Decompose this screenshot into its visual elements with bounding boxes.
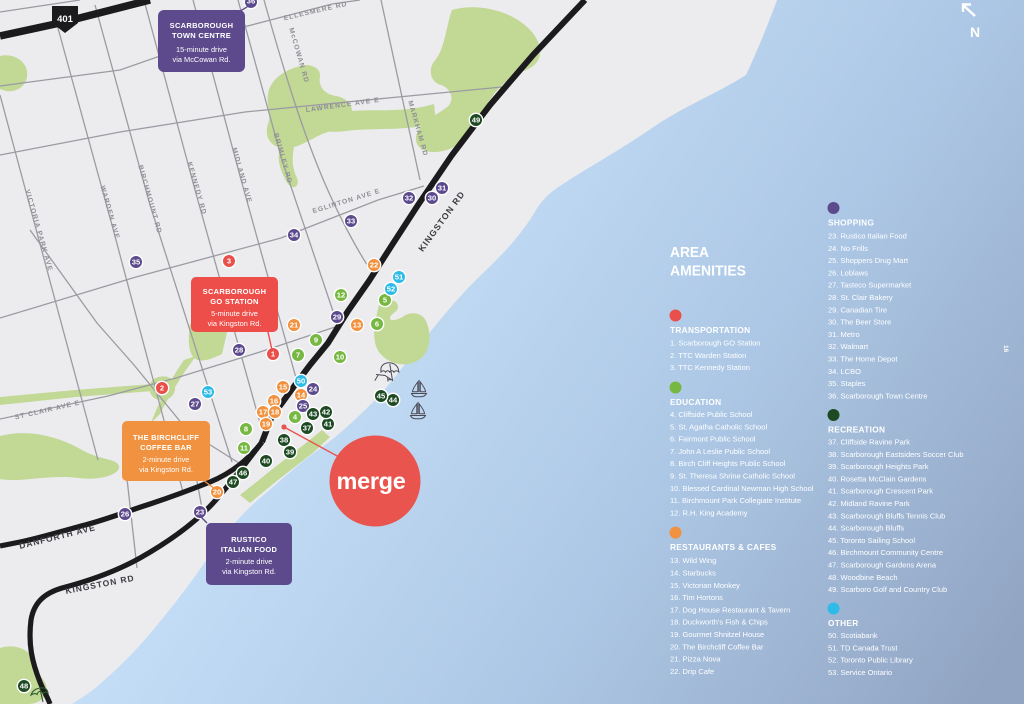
svg-text:9. St. Theresa Shrine Catholic: 9. St. Theresa Shrine Catholic School [670, 472, 795, 481]
svg-text:RUSTICO: RUSTICO [231, 535, 267, 544]
svg-text:AREA: AREA [670, 245, 709, 261]
svg-text:29: 29 [333, 313, 341, 322]
svg-text:3: 3 [227, 257, 231, 266]
svg-text:49. Scarboro Golf and Country: 49. Scarboro Golf and Country Club [828, 585, 947, 594]
svg-text:2-minute drive: 2-minute drive [226, 557, 273, 566]
svg-text:2-minute drive: 2-minute drive [143, 455, 190, 464]
svg-text:41. Scarborough Crescent Park: 41. Scarborough Crescent Park [828, 487, 933, 496]
svg-text:THE BIRCHCLIFF: THE BIRCHCLIFF [133, 433, 199, 442]
svg-text:25. Shoppers Drug Mart: 25. Shoppers Drug Mart [828, 256, 909, 265]
svg-text:11: 11 [240, 444, 249, 453]
svg-text:51: 51 [395, 273, 404, 282]
svg-text:47: 47 [229, 478, 237, 487]
svg-text:51. TD Canada Trust: 51. TD Canada Trust [828, 643, 898, 652]
svg-text:35: 35 [132, 258, 141, 267]
svg-text:45. Toronto Sailing School: 45. Toronto Sailing School [828, 536, 915, 545]
svg-text:34. LCBO: 34. LCBO [828, 367, 861, 376]
svg-text:EDUCATION: EDUCATION [670, 397, 721, 407]
svg-text:16. Tim Hortons: 16. Tim Hortons [670, 593, 723, 602]
svg-text:30. The Beer Store: 30. The Beer Store [828, 318, 891, 327]
svg-text:33. The Home Depot: 33. The Home Depot [828, 355, 898, 364]
svg-text:8. Birch Cliff Heights Public: 8. Birch Cliff Heights Public School [670, 459, 786, 468]
svg-text:9: 9 [314, 336, 318, 345]
svg-text:41: 41 [324, 420, 333, 429]
svg-text:28: 28 [235, 346, 243, 355]
svg-text:23. Rustico Italian Food: 23. Rustico Italian Food [828, 232, 907, 241]
svg-text:31: 31 [438, 184, 447, 193]
svg-text:via Kingston Rd.: via Kingston Rd. [139, 465, 193, 474]
svg-text:23: 23 [196, 508, 204, 517]
svg-text:GO STATION: GO STATION [210, 297, 259, 306]
svg-text:via McCowan Rd.: via McCowan Rd. [173, 55, 231, 64]
svg-text:20. The Birchcliff Coffee Bar: 20. The Birchcliff Coffee Bar [670, 642, 764, 651]
svg-text:35. Staples: 35. Staples [828, 379, 866, 388]
svg-text:7: 7 [296, 351, 300, 360]
svg-text:7. John A Leslie Public School: 7. John A Leslie Public School [670, 447, 770, 456]
svg-text:52: 52 [387, 285, 395, 294]
svg-text:46: 46 [239, 469, 247, 478]
svg-text:32: 32 [405, 194, 413, 203]
svg-text:17. Dog House Restaurant & Tav: 17. Dog House Restaurant & Tavern [670, 605, 790, 614]
svg-text:15: 15 [279, 383, 288, 392]
svg-text:TRANSPORTATION: TRANSPORTATION [670, 325, 750, 335]
svg-text:49: 49 [472, 116, 480, 125]
svg-text:17: 17 [259, 408, 267, 417]
svg-text:N: N [970, 24, 980, 40]
svg-text:26: 26 [121, 510, 129, 519]
svg-text:14: 14 [297, 391, 306, 400]
svg-text:47. Scarborough Gardens Arena: 47. Scarborough Gardens Arena [828, 561, 937, 570]
svg-text:36: 36 [247, 0, 255, 6]
svg-text:16: 16 [270, 397, 278, 406]
svg-text:29. Canadian Tire: 29. Canadian Tire [828, 305, 887, 314]
svg-text:19: 19 [262, 420, 270, 429]
svg-text:48. Woodbine Beach: 48. Woodbine Beach [828, 573, 898, 582]
svg-text:50. Scotiabank: 50. Scotiabank [828, 631, 878, 640]
svg-text:21. Pizza Nova: 21. Pizza Nova [670, 655, 721, 664]
svg-text:39. Scarborough Heights Park: 39. Scarborough Heights Park [828, 462, 929, 471]
svg-text:TOWN CENTRE: TOWN CENTRE [172, 31, 231, 40]
svg-text:via Kingston Rd.: via Kingston Rd. [208, 319, 262, 328]
svg-text:16: 16 [1002, 345, 1009, 353]
svg-text:COFFEE BAR: COFFEE BAR [140, 443, 192, 452]
svg-text:44: 44 [389, 396, 398, 405]
svg-text:50: 50 [297, 377, 305, 386]
svg-text:14. Starbucks: 14. Starbucks [670, 569, 716, 578]
svg-text:RECREATION: RECREATION [828, 425, 885, 435]
svg-text:33: 33 [347, 217, 355, 226]
svg-text:3. TTC Kennedy Station: 3. TTC Kennedy Station [670, 363, 750, 372]
svg-text:6. Fairmont Public School: 6. Fairmont Public School [670, 435, 756, 444]
svg-text:28. St. Clair Bakery: 28. St. Clair Bakery [828, 293, 893, 302]
svg-text:19. Gourmet Shnitzel House: 19. Gourmet Shnitzel House [670, 630, 764, 639]
svg-text:24: 24 [309, 385, 318, 394]
svg-text:5-minute drive: 5-minute drive [211, 309, 258, 318]
svg-text:merge: merge [336, 468, 405, 494]
svg-text:27: 27 [191, 400, 199, 409]
svg-text:27. Tasteco Supermarket: 27. Tasteco Supermarket [828, 281, 912, 290]
svg-text:52. Toronto Public Library: 52. Toronto Public Library [828, 656, 913, 665]
svg-text:RESTAURANTS & CAFES: RESTAURANTS & CAFES [670, 542, 777, 552]
svg-text:24. No Frills: 24. No Frills [828, 244, 868, 253]
svg-text:8: 8 [244, 425, 248, 434]
svg-text:22. Drip Cafe: 22. Drip Cafe [670, 667, 714, 676]
svg-text:42. Midland Ravine Park: 42. Midland Ravine Park [828, 499, 910, 508]
svg-text:12. R.H. King Academy: 12. R.H. King Academy [670, 508, 748, 517]
svg-text:42: 42 [322, 408, 330, 417]
svg-text:SCARBOROUGH: SCARBOROUGH [203, 287, 267, 296]
svg-text:48: 48 [20, 682, 28, 691]
svg-text:2. TTC Warden Station: 2. TTC Warden Station [670, 351, 746, 360]
svg-text:43. Scarborough Bluffs Tennis: 43. Scarborough Bluffs Tennis Club [828, 511, 945, 520]
svg-text:15-minute drive: 15-minute drive [176, 45, 227, 54]
svg-text:5. St. Agatha Catholic School: 5. St. Agatha Catholic School [670, 422, 767, 431]
svg-text:2: 2 [160, 384, 164, 393]
svg-text:1. Scarborough GO Station: 1. Scarborough GO Station [670, 339, 760, 348]
svg-text:38. Scarborough Eastsiders Soc: 38. Scarborough Eastsiders Soccer Club [828, 450, 964, 459]
svg-text:30: 30 [428, 194, 436, 203]
svg-text:37. Cliffside Ravine Park: 37. Cliffside Ravine Park [828, 438, 910, 447]
svg-text:ITALIAN FOOD: ITALIAN FOOD [221, 545, 278, 554]
svg-text:46. Birchmount Community Centr: 46. Birchmount Community Centre [828, 548, 943, 557]
svg-text:53. Service Ontario: 53. Service Ontario [828, 668, 892, 677]
svg-text:12: 12 [337, 291, 345, 300]
svg-text:11. Birchmount Park Collegiate: 11. Birchmount Park Collegiate Institute [670, 496, 801, 505]
svg-text:45: 45 [377, 392, 386, 401]
svg-text:31. Metro: 31. Metro [828, 330, 860, 339]
svg-text:18. Duckworth's Fish & Chips: 18. Duckworth's Fish & Chips [670, 618, 768, 627]
svg-text:39: 39 [286, 448, 294, 457]
svg-text:40. Rosetta McClain Gardens: 40. Rosetta McClain Gardens [828, 474, 927, 483]
svg-text:25: 25 [299, 402, 308, 411]
svg-text:13: 13 [353, 321, 361, 330]
svg-text:SHOPPING: SHOPPING [828, 218, 874, 228]
svg-text:15. Victorian Monkey: 15. Victorian Monkey [670, 581, 740, 590]
svg-text:43: 43 [309, 410, 317, 419]
svg-text:36. Scarborough Town Centre: 36. Scarborough Town Centre [828, 391, 928, 400]
svg-text:OTHER: OTHER [828, 618, 859, 628]
svg-text:AMENITIES: AMENITIES [670, 264, 746, 280]
svg-text:34: 34 [290, 231, 299, 240]
svg-text:10: 10 [336, 353, 344, 362]
svg-text:SCARBOROUGH: SCARBOROUGH [170, 21, 234, 30]
svg-text:40: 40 [262, 457, 270, 466]
svg-text:53: 53 [204, 388, 212, 397]
svg-text:37: 37 [303, 424, 311, 433]
svg-text:401: 401 [57, 14, 74, 25]
svg-text:32. Walmart: 32. Walmart [828, 342, 869, 351]
svg-text:22: 22 [370, 261, 378, 270]
svg-text:via Kingston Rd.: via Kingston Rd. [222, 567, 276, 576]
svg-text:10. Blessed Cardinal Newman Hi: 10. Blessed Cardinal Newman High School [670, 484, 814, 493]
svg-text:26. Loblaws: 26. Loblaws [828, 268, 868, 277]
svg-text:21: 21 [290, 321, 299, 330]
svg-text:18: 18 [271, 408, 279, 417]
svg-text:38: 38 [280, 436, 288, 445]
svg-text:4. Cliffside Public School: 4. Cliffside Public School [670, 410, 753, 419]
svg-text:13. Wild Wing: 13. Wild Wing [670, 556, 716, 565]
svg-text:6: 6 [375, 320, 379, 329]
svg-text:44. Scarborough Bluffs: 44. Scarborough Bluffs [828, 524, 904, 533]
